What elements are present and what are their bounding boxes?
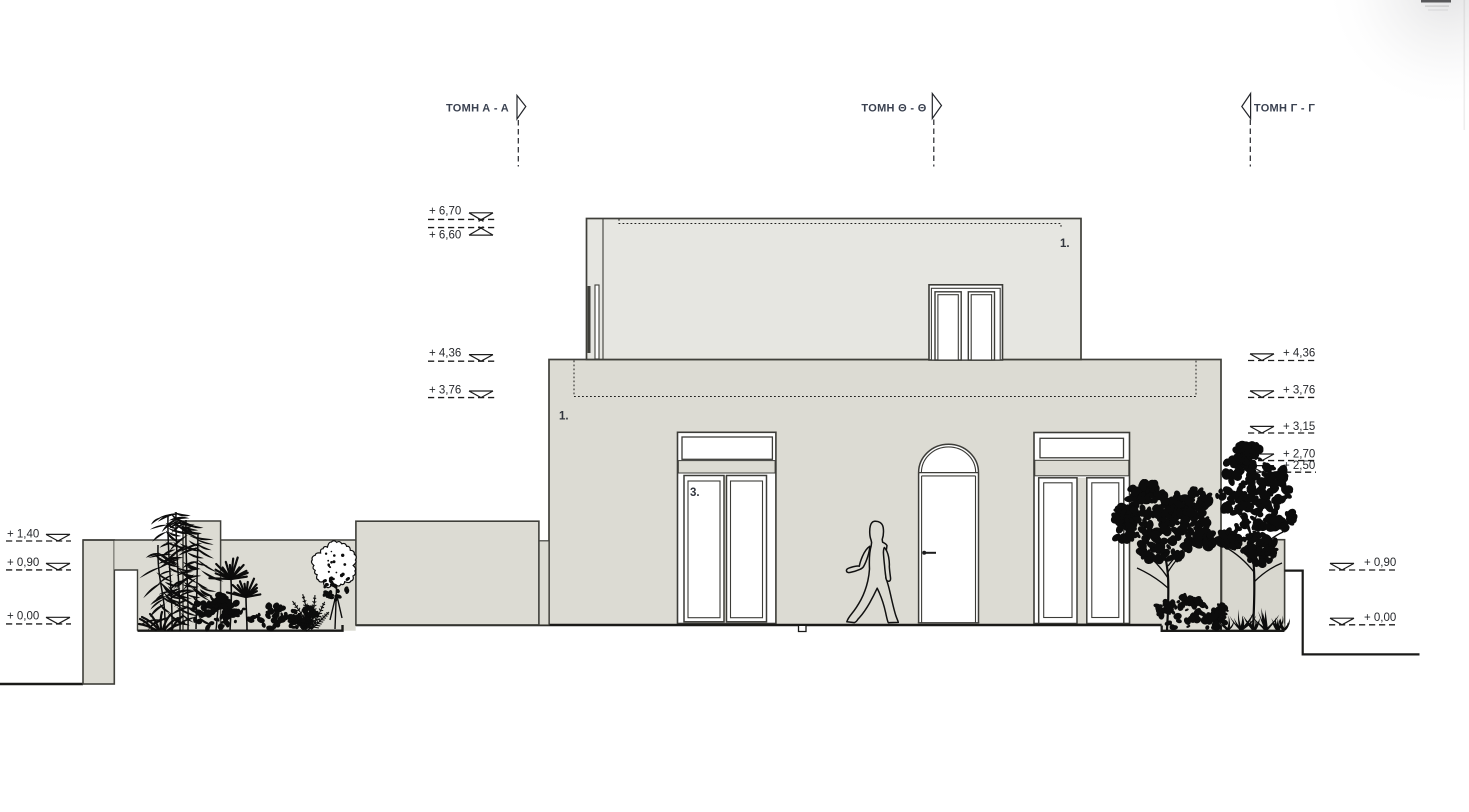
svg-text:+ 3,76: + 3,76 <box>429 385 461 397</box>
svg-text:+ 6,70: + 6,70 <box>429 206 461 218</box>
svg-text:+ 1,40: + 1,40 <box>7 529 39 541</box>
svg-text:+ 4,36: + 4,36 <box>429 348 461 360</box>
svg-text:+ 0,00: + 0,00 <box>1364 612 1396 624</box>
svg-text:+ 0,90: + 0,90 <box>1364 557 1396 569</box>
svg-text:ΤΟΜΗ Γ - Γ: ΤΟΜΗ Γ - Γ <box>1254 103 1315 115</box>
svg-text:3.: 3. <box>690 487 700 499</box>
svg-text:+ 3,15: + 3,15 <box>1283 421 1315 433</box>
svg-text:+ 0,00: + 0,00 <box>7 611 39 623</box>
svg-text:ΤΟΜΗ Α - Α: ΤΟΜΗ Α - Α <box>446 103 509 115</box>
svg-text:+ 4,36: + 4,36 <box>1283 348 1315 360</box>
svg-text:+ 3,76: + 3,76 <box>1283 385 1315 397</box>
svg-text:1.: 1. <box>559 411 569 423</box>
svg-text:ΤΟΜΗ Θ - Θ: ΤΟΜΗ Θ - Θ <box>861 103 926 115</box>
svg-text:+ 2,70: + 2,70 <box>1283 449 1315 461</box>
svg-text:1.: 1. <box>1060 238 1070 250</box>
svg-text:+ 0,90: + 0,90 <box>7 557 39 569</box>
svg-text:+ 6,60: + 6,60 <box>429 230 461 242</box>
svg-text:+ 2,50: + 2,50 <box>1283 460 1315 472</box>
